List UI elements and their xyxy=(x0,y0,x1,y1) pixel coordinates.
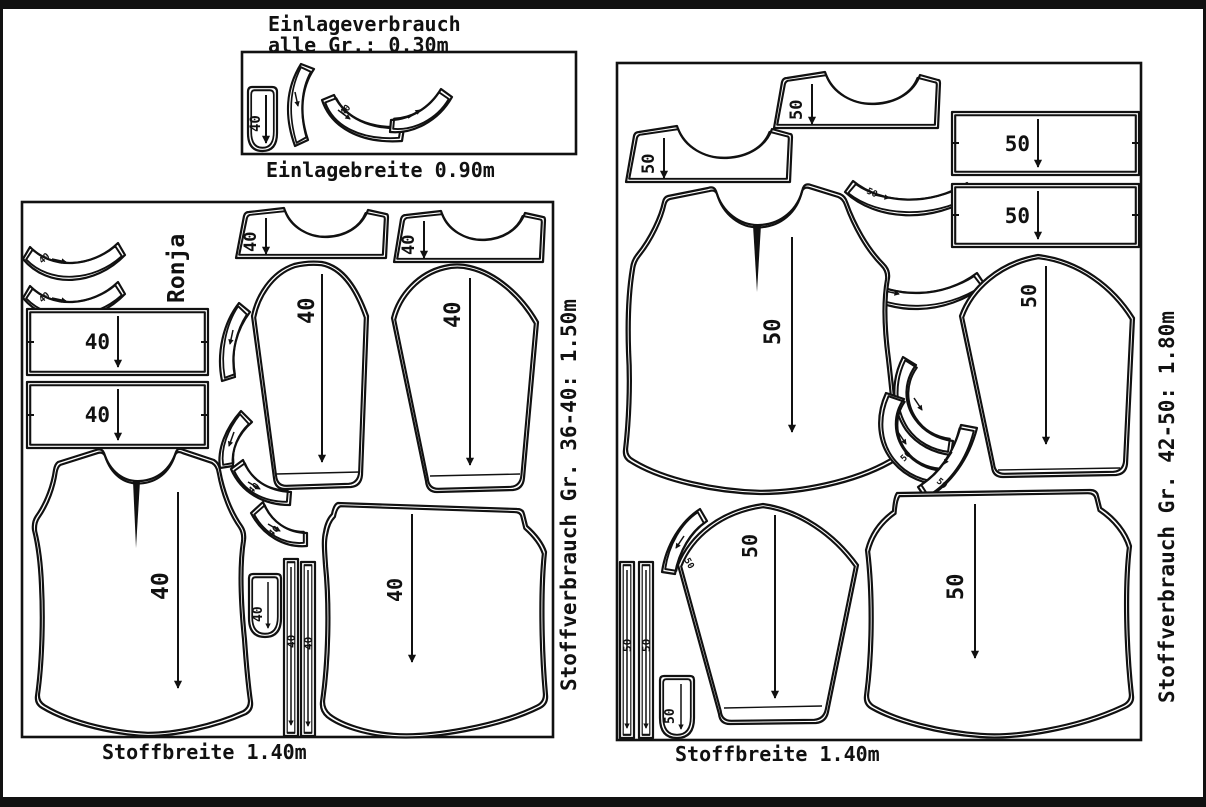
piece-sleeve-1: 40 xyxy=(252,262,368,489)
piece-interfacing-collar-stand xyxy=(288,64,314,146)
piece-tie-strip-2-50: 50 xyxy=(639,562,653,738)
piece-size-label: 50 xyxy=(663,708,678,724)
piece-size-label: 40 xyxy=(285,635,298,648)
piece-size-label: 50 xyxy=(761,319,786,346)
piece-armhole-facing-b xyxy=(219,411,252,468)
piece-band-rect-2: 40 xyxy=(27,382,208,448)
piece-size-label: 50 xyxy=(640,639,653,652)
piece-back-yoke-2: 40 xyxy=(394,211,545,262)
piece-size-label: 40 xyxy=(399,235,419,255)
piece-back-yoke-1: 40 xyxy=(236,208,388,258)
piece-size-label: 40 xyxy=(251,606,266,622)
piece-size-label: 50 xyxy=(1005,204,1030,228)
piece-band-rect-1: 40 xyxy=(27,309,208,375)
piece-size-label: 50 xyxy=(639,154,659,174)
piece-band-rect-1-50: 50 xyxy=(952,112,1139,175)
piece-tie-strip-2: 40 xyxy=(301,562,315,736)
pattern-name-label: Ronja xyxy=(164,234,190,303)
fabric-usage-label-left: Stoffverbrauch Gr. 36-40: 1.50m xyxy=(557,299,581,691)
piece-size-label: 40 xyxy=(85,330,110,354)
piece-size-label: 40 xyxy=(441,302,466,329)
piece-back-bodice-50: 50 xyxy=(865,490,1133,738)
pattern-layout-svg: 40 40 40 40 Ronja xyxy=(0,0,1206,807)
piece-interfacing-collar-band-2 xyxy=(390,89,452,132)
piece-size-label: 50 xyxy=(621,639,634,652)
piece-size-label: 40 xyxy=(241,232,261,252)
piece-size-label: 50 xyxy=(787,100,807,120)
piece-size-label: 50 xyxy=(1005,132,1030,156)
piece-sleeve-bottom-50: 50 xyxy=(678,504,858,724)
piece-back-bodice: 40 xyxy=(321,503,547,737)
piece-size-label: 40 xyxy=(383,578,407,602)
piece-size-label: 40 xyxy=(148,572,174,600)
piece-collar-band-a: 40 xyxy=(23,243,125,280)
piece-placket-small: 40 xyxy=(249,574,281,637)
piece-interfacing-collar-band-1: 40 xyxy=(322,95,404,141)
piece-sleeve-2: 40 xyxy=(392,265,538,493)
piece-size-label: 40 xyxy=(302,637,315,650)
piece-size-label: 50 xyxy=(1017,284,1041,308)
piece-size-label: 50 xyxy=(944,574,969,601)
piece-back-yoke-b-50: 50 xyxy=(626,126,792,182)
piece-size-label: 50 xyxy=(738,534,762,558)
piece-back-yoke-a-50: 50 xyxy=(774,72,940,128)
piece-size-label: 40 xyxy=(85,403,110,427)
piece-front-bodice-50: 50 xyxy=(624,184,899,494)
grain-arrow-small xyxy=(914,398,922,410)
piece-size-label: 40 xyxy=(248,115,264,132)
piece-armhole-facing-a xyxy=(220,303,250,381)
piece-placket-small-50: 50 xyxy=(660,676,694,738)
piece-size-label: 40 xyxy=(295,298,320,325)
piece-tie-strip-1-50: 50 xyxy=(620,562,634,738)
fabric-usage-label-right: Stoffverbrauch Gr. 42-50: 1.80m xyxy=(1155,311,1179,703)
piece-band-rect-2-50: 50 xyxy=(952,184,1139,247)
piece-tie-strip-1: 40 xyxy=(284,559,298,736)
piece-interfacing-placket: 40 xyxy=(248,87,277,151)
piece-neckline-facing-b: 40 xyxy=(251,502,307,546)
pattern-layout-page: Einlageverbrauch alle Gr.: 0.30m Einlage… xyxy=(0,0,1206,807)
piece-front-bodice: 40 xyxy=(33,449,252,736)
piece-sleeve-right-50: 50 xyxy=(960,255,1134,477)
